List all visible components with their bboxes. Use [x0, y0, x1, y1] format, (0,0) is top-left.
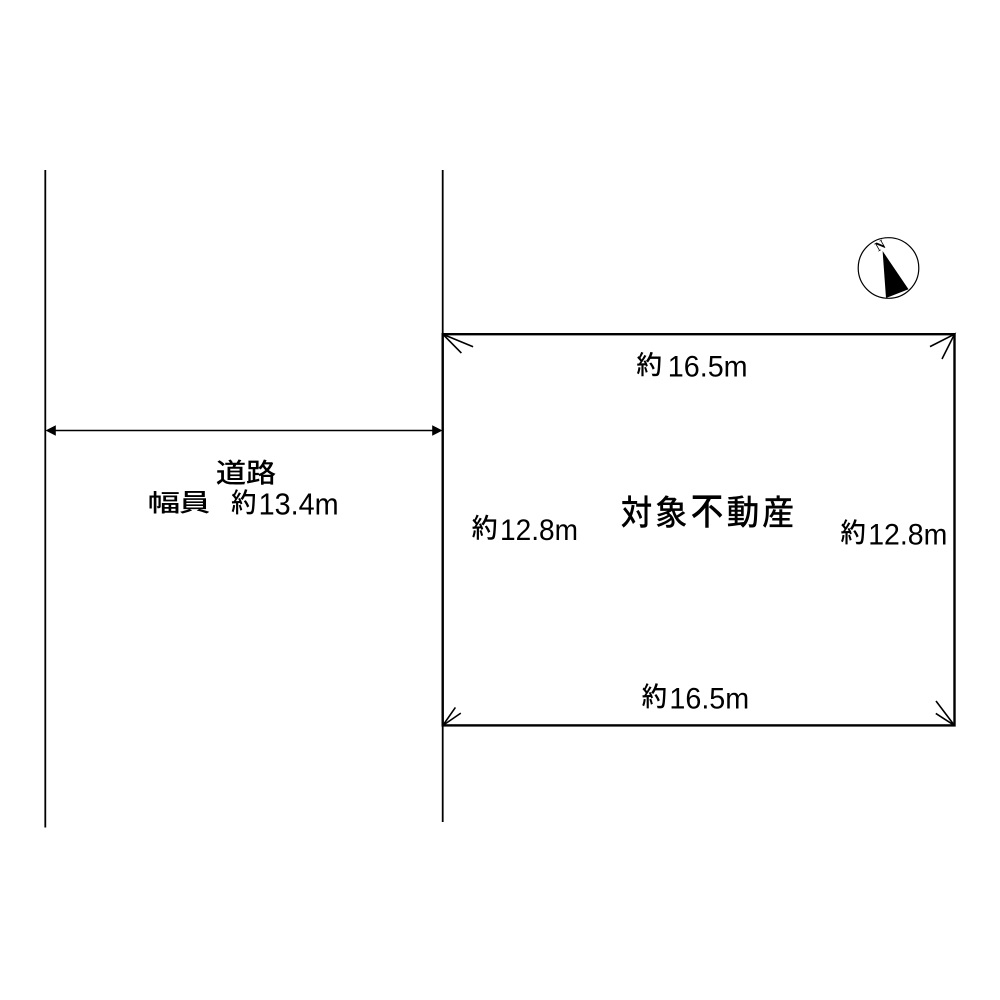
svg-text:13.4m: 13.4m: [259, 486, 339, 521]
svg-text:12.8m: 12.8m: [868, 518, 947, 551]
svg-text:16.5m: 16.5m: [669, 682, 749, 715]
svg-text:16.5m: 16.5m: [668, 350, 748, 383]
svg-text:12.8m: 12.8m: [500, 514, 578, 547]
